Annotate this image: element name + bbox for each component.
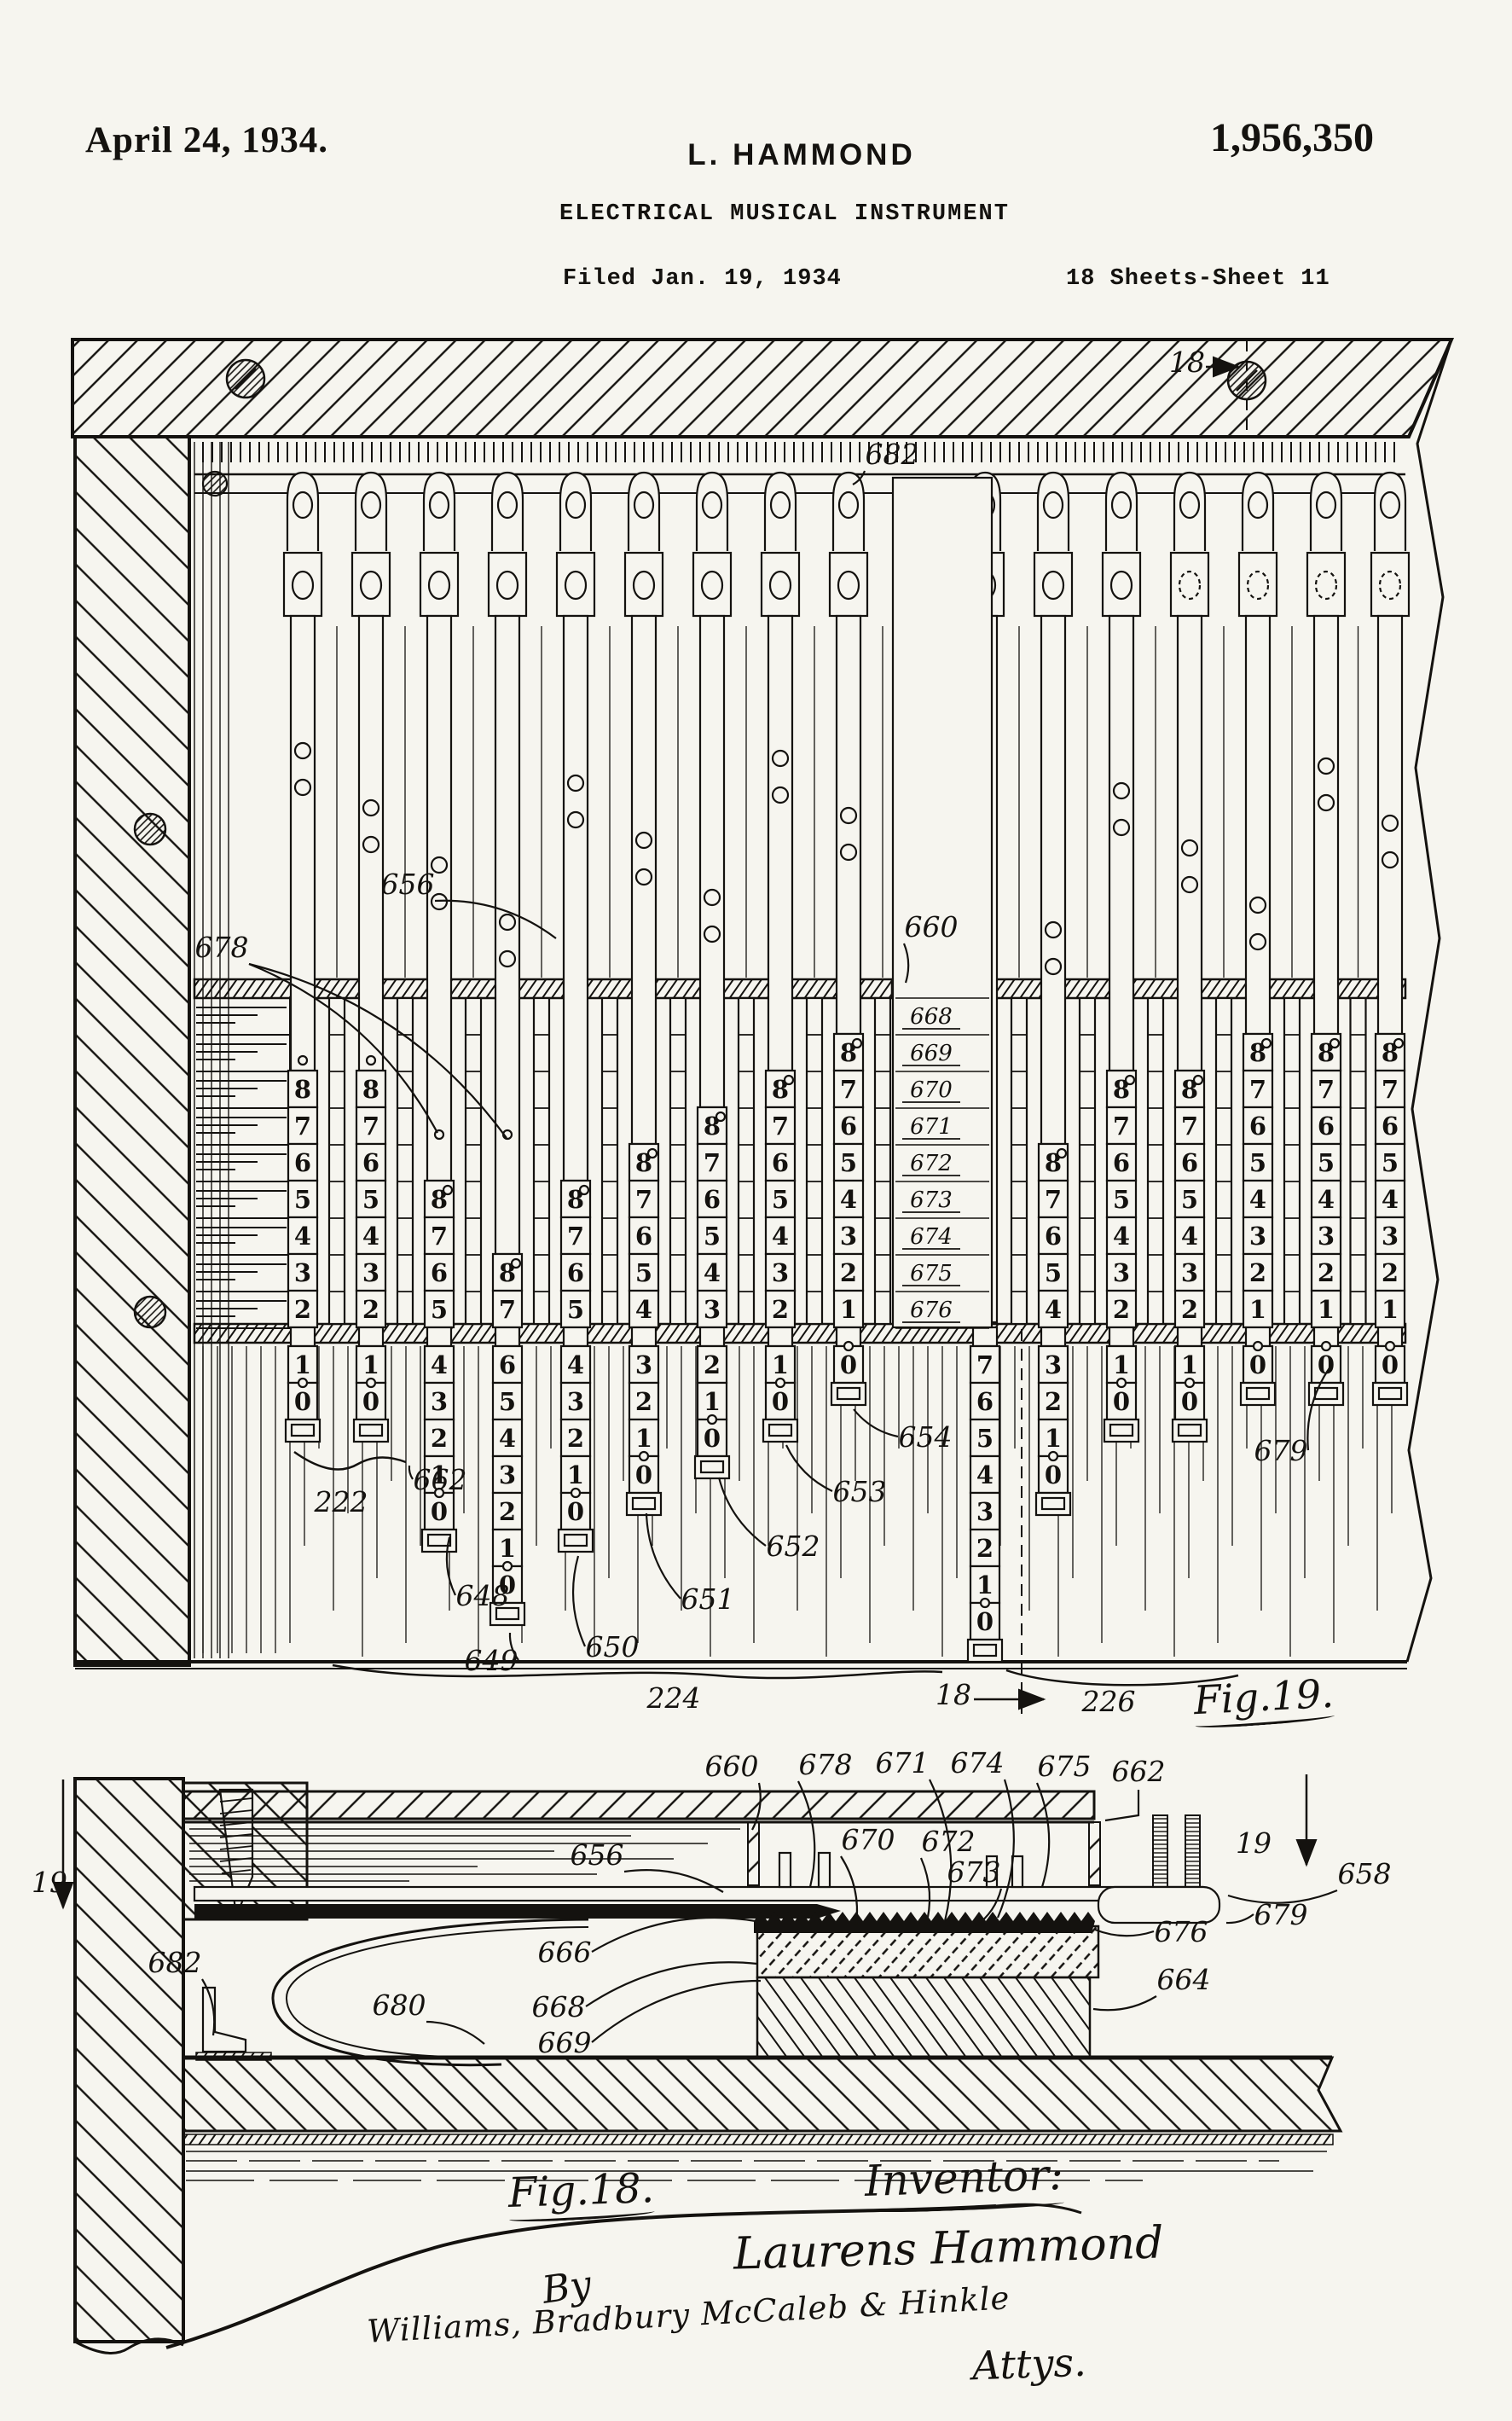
ref-label-674: 674: [910, 1224, 953, 1250]
scale-digit: 6: [499, 1350, 516, 1379]
scale-digit: 7: [1382, 1075, 1399, 1104]
scale-digit: 3: [1249, 1222, 1266, 1251]
fig19-ref-label-226: 226: [1081, 1685, 1136, 1718]
fig19-ref-label-654: 654: [899, 1420, 953, 1454]
drawbar: 876543210: [1371, 473, 1409, 1405]
contact-pin: [1012, 1856, 1022, 1887]
scale-digit: 0: [1249, 1350, 1266, 1379]
scale-digit: 4: [1249, 1185, 1266, 1214]
scale-digit: 0: [431, 1497, 448, 1526]
scale-digit: 5: [1113, 1185, 1130, 1214]
scale-digit: 2: [294, 1295, 311, 1324]
fig19-ref-label-656: 656: [381, 868, 435, 901]
fig18-ref-label-668: 668: [532, 1990, 586, 2023]
scale-digit: 1: [1318, 1295, 1335, 1324]
fig18-ref-label-680: 680: [373, 1988, 426, 2022]
housing-right-wall: [1089, 1822, 1100, 1885]
scale-digit: 2: [499, 1497, 516, 1526]
fig18-ref-label-658: 658: [1338, 1857, 1392, 1890]
scale-digit: 3: [976, 1497, 994, 1526]
drawbar: 876543210: [693, 473, 731, 1478]
wall-screw-2: [135, 1297, 165, 1327]
ref-label-669: 669: [910, 1041, 953, 1066]
scale-digit: 7: [635, 1185, 652, 1214]
drawbar: 876543210: [352, 473, 390, 1442]
scale-digit: 5: [431, 1295, 448, 1324]
rod-clamp-band: [194, 1904, 841, 1919]
scale-digit: 1: [567, 1460, 584, 1489]
fig19-ref-label-660: 660: [905, 910, 959, 943]
scale-digit: 7: [567, 1222, 584, 1251]
scale-digit: 4: [976, 1460, 994, 1489]
scale-digit: 1: [294, 1350, 311, 1379]
scale-digit: 7: [1318, 1075, 1335, 1104]
fig19-ref-label-222: 222: [314, 1485, 368, 1518]
scale-digit: 1: [976, 1570, 994, 1599]
scale-digit: 3: [567, 1387, 584, 1416]
fig18-ref-label-674: 674: [951, 1746, 1005, 1779]
fig19-ref-label-662: 662: [414, 1463, 467, 1496]
fig18-lower-grain: [186, 2151, 1327, 2180]
fig18-ref-label-662: 662: [1112, 1755, 1166, 1788]
scale-digit: 7: [840, 1075, 857, 1104]
scale-digit: 6: [431, 1258, 448, 1287]
fig19-comb-ticks: [203, 442, 1394, 462]
patent-drawing: 8765432108765432108765432108765432108765…: [0, 0, 1512, 2421]
scale-digit: 4: [431, 1350, 448, 1379]
scale-digit: 3: [840, 1222, 857, 1251]
scale-digit: 5: [362, 1185, 379, 1214]
scale-digit: 6: [294, 1148, 311, 1177]
scale-digit: 7: [362, 1112, 379, 1141]
scale-digit: 3: [1113, 1258, 1130, 1287]
fig19-ref-label-682: 682: [866, 438, 919, 471]
scale-digit: 4: [704, 1258, 721, 1287]
rope-strip: [183, 2134, 1333, 2145]
scale-digit: 5: [840, 1148, 857, 1177]
scale-digit: 0: [294, 1387, 311, 1416]
scale-digit: 6: [567, 1258, 584, 1287]
scale-digit: 0: [976, 1607, 994, 1636]
brace-224: [333, 1665, 942, 1678]
ref-label-671: 671: [910, 1114, 953, 1140]
ref-label-676: 676: [910, 1298, 953, 1323]
scale-digit: 3: [294, 1258, 311, 1287]
ref-label-672: 672: [910, 1151, 953, 1176]
drawbar: 876543210: [1239, 473, 1277, 1405]
scale-digit: 7: [431, 1222, 448, 1251]
scale-digit: 1: [1181, 1350, 1198, 1379]
scale-digit: 6: [704, 1185, 721, 1214]
drawbar: 876543210: [489, 473, 526, 1625]
fig18-ref-label-682: 682: [148, 1946, 202, 1979]
scale-digit: 5: [1181, 1185, 1198, 1214]
fig19-ref-label-648: 648: [456, 1579, 510, 1612]
scale-digit: 0: [840, 1350, 857, 1379]
scale-digit: 2: [976, 1534, 994, 1563]
fig18-ref-label-671: 671: [876, 1746, 930, 1779]
attys-label: Attys.: [971, 2339, 1086, 2389]
drawbar: 876543210: [557, 473, 594, 1552]
scale-digit: 5: [1318, 1148, 1335, 1177]
scale-digit: 5: [772, 1185, 789, 1214]
scale-digit: 4: [1181, 1222, 1198, 1251]
fig18-caption: Fig.18.: [507, 2164, 655, 2222]
scale-digit: 5: [1249, 1148, 1266, 1177]
scale-digit: 8: [362, 1075, 379, 1104]
scale-digit: 7: [1113, 1112, 1130, 1141]
ref-label-670: 670: [910, 1077, 953, 1103]
scale-digit: 6: [1045, 1222, 1062, 1251]
contact-pin: [819, 1853, 830, 1887]
patent-sheet: April 24, 1934. L. HAMMOND 1,956,350 ELE…: [0, 0, 1512, 2421]
scale-digit: 2: [772, 1295, 789, 1324]
scale-digit: 6: [976, 1387, 994, 1416]
scale-digit: 1: [1382, 1295, 1399, 1324]
scale-digit: 1: [772, 1350, 789, 1379]
scale-digit: 4: [567, 1350, 584, 1379]
block-664: [757, 1977, 1090, 2058]
scale-digit: 6: [635, 1222, 652, 1251]
scale-digit: 5: [976, 1424, 994, 1453]
scale-digit: 6: [1249, 1112, 1266, 1141]
scale-digit: 2: [1249, 1258, 1266, 1287]
scale-digit: 4: [1045, 1295, 1062, 1324]
drawbar: 876543210: [1171, 473, 1208, 1442]
scale-digit: 1: [362, 1350, 379, 1379]
scale-digit: 3: [635, 1350, 652, 1379]
fig18-ref-label-679: 679: [1254, 1898, 1308, 1931]
fig19-left-wall: [75, 437, 189, 1665]
ref-label-675: 675: [910, 1261, 953, 1286]
drawbar: 876543210: [420, 473, 458, 1552]
head-rail-screw: [203, 472, 227, 496]
fig18-ref-label-656: 656: [571, 1838, 624, 1872]
fig18-ref-label-19: 19: [1236, 1826, 1272, 1860]
scale-digit: 3: [1382, 1222, 1399, 1251]
scale-digit: 1: [704, 1387, 721, 1416]
scale-digit: 4: [840, 1185, 857, 1214]
contact-pin: [779, 1853, 791, 1887]
scale-digit: 0: [772, 1387, 789, 1416]
bracket-682: [203, 1988, 246, 2052]
scale-digit: 2: [840, 1258, 857, 1287]
scale-digit: 7: [976, 1350, 994, 1379]
scale-digit: 3: [1045, 1350, 1062, 1379]
scale-digit: 0: [635, 1460, 652, 1489]
scale-digit: 3: [1181, 1258, 1198, 1287]
scale-digit: 3: [1318, 1222, 1335, 1251]
scale-digit: 1: [840, 1295, 857, 1324]
scale-digit: 6: [1181, 1148, 1198, 1177]
scale-digit: 3: [431, 1387, 448, 1416]
ref-label-668: 668: [910, 1004, 953, 1030]
fig18-ref-label-670: 670: [842, 1823, 895, 1856]
fig19-drawbars-layer: 8765432108765432108765432108765432108765…: [194, 442, 1409, 1662]
scale-digit: 7: [1045, 1185, 1062, 1214]
scale-digit: 0: [1318, 1350, 1335, 1379]
scale-digit: 1: [1249, 1295, 1266, 1324]
scale-digit: 5: [1382, 1148, 1399, 1177]
fig19-caption: Fig.19.: [1193, 1670, 1335, 1728]
scale-digit: 5: [1045, 1258, 1062, 1287]
scale-digit: 4: [1113, 1222, 1130, 1251]
scale-digit: 7: [294, 1112, 311, 1141]
scale-digit: 6: [362, 1148, 379, 1177]
scale-digit: 0: [362, 1387, 379, 1416]
scale-digit: 6: [1318, 1112, 1335, 1141]
fig19-ref-label-651: 651: [681, 1582, 735, 1616]
drawbar: 876543210: [830, 473, 867, 1405]
inventor-heading: Inventor:: [864, 2150, 1064, 2214]
fig19-ref-label-18: 18: [1169, 345, 1205, 379]
fig18-ref-label-673: 673: [947, 1855, 1001, 1889]
fig18-ref-label-669: 669: [538, 2026, 592, 2059]
fig18-left-wall: [75, 1779, 183, 2342]
housing-left-wall: [748, 1822, 759, 1885]
drawbar: 876543210: [1103, 473, 1140, 1442]
scale-digit: 3: [704, 1295, 721, 1324]
scale-digit: 6: [840, 1112, 857, 1141]
scale-digit: 4: [772, 1222, 789, 1251]
scale-digit: 2: [1181, 1295, 1198, 1324]
scale-digit: 2: [1045, 1387, 1062, 1416]
scale-digit: 0: [1181, 1387, 1198, 1416]
scale-digit: 2: [704, 1350, 721, 1379]
scale-digit: 1: [1045, 1424, 1062, 1453]
scale-digit: 5: [499, 1387, 516, 1416]
scale-digit: 5: [635, 1258, 652, 1287]
base-slab: [183, 2058, 1341, 2131]
scale-digit: 6: [772, 1148, 789, 1177]
fig18-top-plate: [183, 1791, 1094, 1819]
fig19-ref-label-678: 678: [195, 931, 249, 964]
scale-digit: 4: [362, 1222, 379, 1251]
scale-digit: 0: [567, 1497, 584, 1526]
scale-digit: 2: [635, 1387, 652, 1416]
fig19-ledger-rows: [196, 998, 290, 1328]
scale-digit: 4: [1382, 1185, 1399, 1214]
scale-digit: 2: [431, 1424, 448, 1453]
scale-digit: 5: [704, 1222, 721, 1251]
scale-digit: 0: [1045, 1460, 1062, 1489]
index-plate-660: 668669670671672673674675676: [893, 478, 992, 1328]
scale-digit: 7: [1181, 1112, 1198, 1141]
fig18-drawbar-rod: [194, 1887, 1202, 1901]
drawbar: 876543210: [762, 473, 799, 1442]
scale-digit: 5: [294, 1185, 311, 1214]
fig18-ref-label-672: 672: [922, 1825, 976, 1858]
scale-digit: 3: [772, 1258, 789, 1287]
fig19-ref-label-652: 652: [767, 1530, 820, 1563]
scale-digit: 2: [1113, 1295, 1130, 1324]
fig18-ref-label-676: 676: [1155, 1915, 1208, 1948]
scale-digit: 3: [499, 1460, 516, 1489]
fig19-ref-label-679: 679: [1254, 1434, 1308, 1467]
scale-digit: 2: [567, 1424, 584, 1453]
scale-digit: 2: [1382, 1258, 1399, 1287]
scale-digit: 7: [704, 1148, 721, 1177]
scale-digit: 7: [1249, 1075, 1266, 1104]
scale-digit: 6: [1113, 1148, 1130, 1177]
drawbar: 876543210: [1307, 473, 1345, 1405]
fig18-ref-label-664: 664: [1157, 1963, 1211, 1996]
scale-digit: 7: [772, 1112, 789, 1141]
scale-digit: 4: [294, 1222, 311, 1251]
brace-222: [294, 1452, 406, 1469]
fig19-ref-label-224: 224: [646, 1681, 701, 1715]
fig19-ref-label-18: 18: [936, 1678, 971, 1711]
scale-digit: 8: [294, 1075, 311, 1104]
fig19-ref-label-649: 649: [465, 1644, 518, 1677]
scale-digit: 2: [362, 1295, 379, 1324]
scale-digit: 4: [1318, 1185, 1335, 1214]
scale-digit: 1: [1113, 1350, 1130, 1379]
scale-digit: 4: [499, 1424, 516, 1453]
fig18-ref-label-678: 678: [799, 1748, 853, 1781]
scale-digit: 7: [499, 1295, 516, 1324]
scale-digit: 2: [1318, 1258, 1335, 1287]
scale-digit: 0: [704, 1424, 721, 1453]
scale-digit: 6: [1382, 1112, 1399, 1141]
fig18-ref-label-666: 666: [538, 1936, 592, 1969]
fig18-ref-label-660: 660: [705, 1750, 759, 1783]
fig19-torn-edge: [1407, 340, 1451, 1662]
fig18-ref-label-19: 19: [32, 1866, 67, 1899]
contact-stack: [757, 1926, 1098, 1977]
scale-digit: 3: [362, 1258, 379, 1287]
scale-digit: 0: [1113, 1387, 1130, 1416]
ref-label-673: 673: [910, 1187, 953, 1213]
scale-digit: 4: [635, 1295, 652, 1324]
scale-digit: 1: [499, 1534, 516, 1563]
fig18-ref-label-675: 675: [1038, 1750, 1092, 1783]
wall-screw-1: [135, 814, 165, 845]
fig19-ref-label-653: 653: [833, 1475, 887, 1508]
drawbar: 876543210: [284, 473, 322, 1442]
terminal-pin-2: [1185, 1815, 1200, 1887]
scale-digit: 1: [635, 1424, 652, 1453]
scale-digit: 5: [567, 1295, 584, 1324]
fig19-gutter-lines: [194, 442, 229, 1658]
terminal-pin-1: [1153, 1815, 1167, 1887]
scale-digit: 0: [1382, 1350, 1399, 1379]
fig19-ref-label-650: 650: [586, 1630, 640, 1663]
